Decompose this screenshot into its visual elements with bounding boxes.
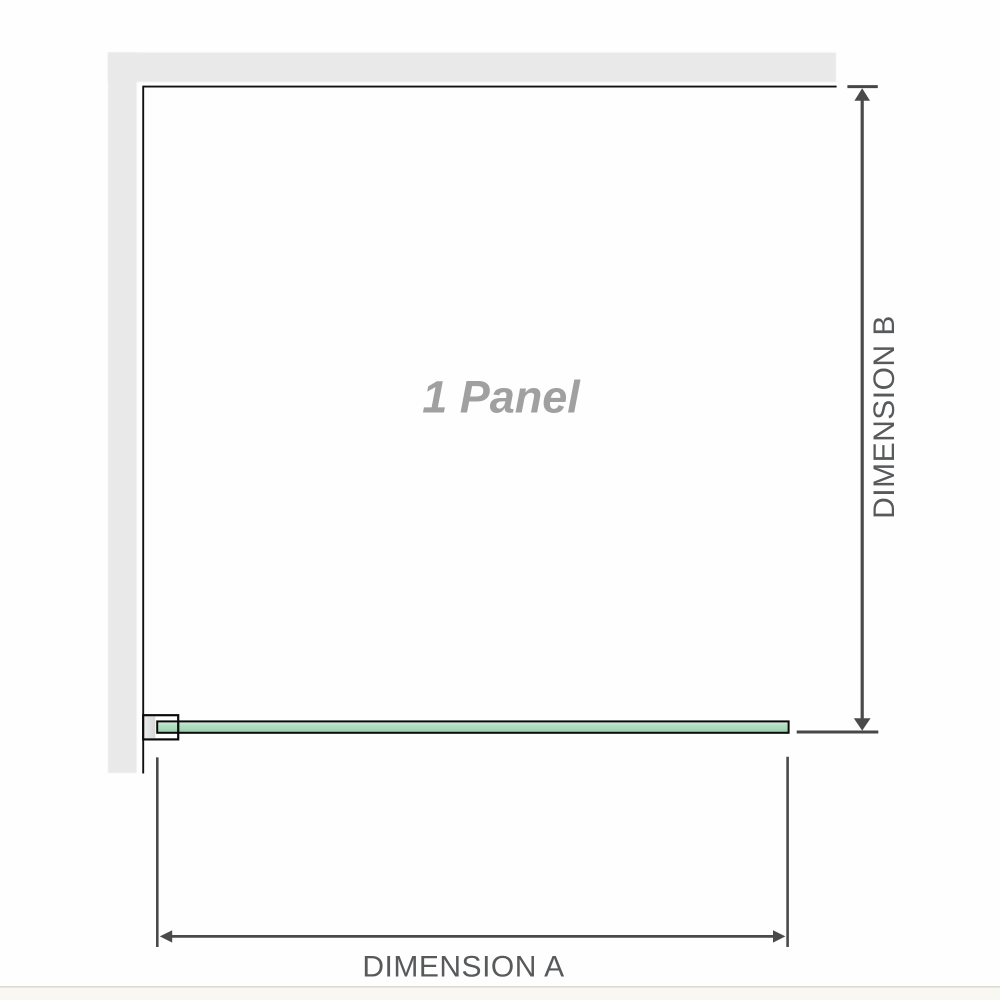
svg-text:1 Panel: 1 Panel bbox=[422, 372, 581, 423]
svg-text:DIMENSION B: DIMENSION B bbox=[868, 315, 901, 519]
svg-text:DIMENSION A: DIMENSION A bbox=[362, 951, 564, 984]
